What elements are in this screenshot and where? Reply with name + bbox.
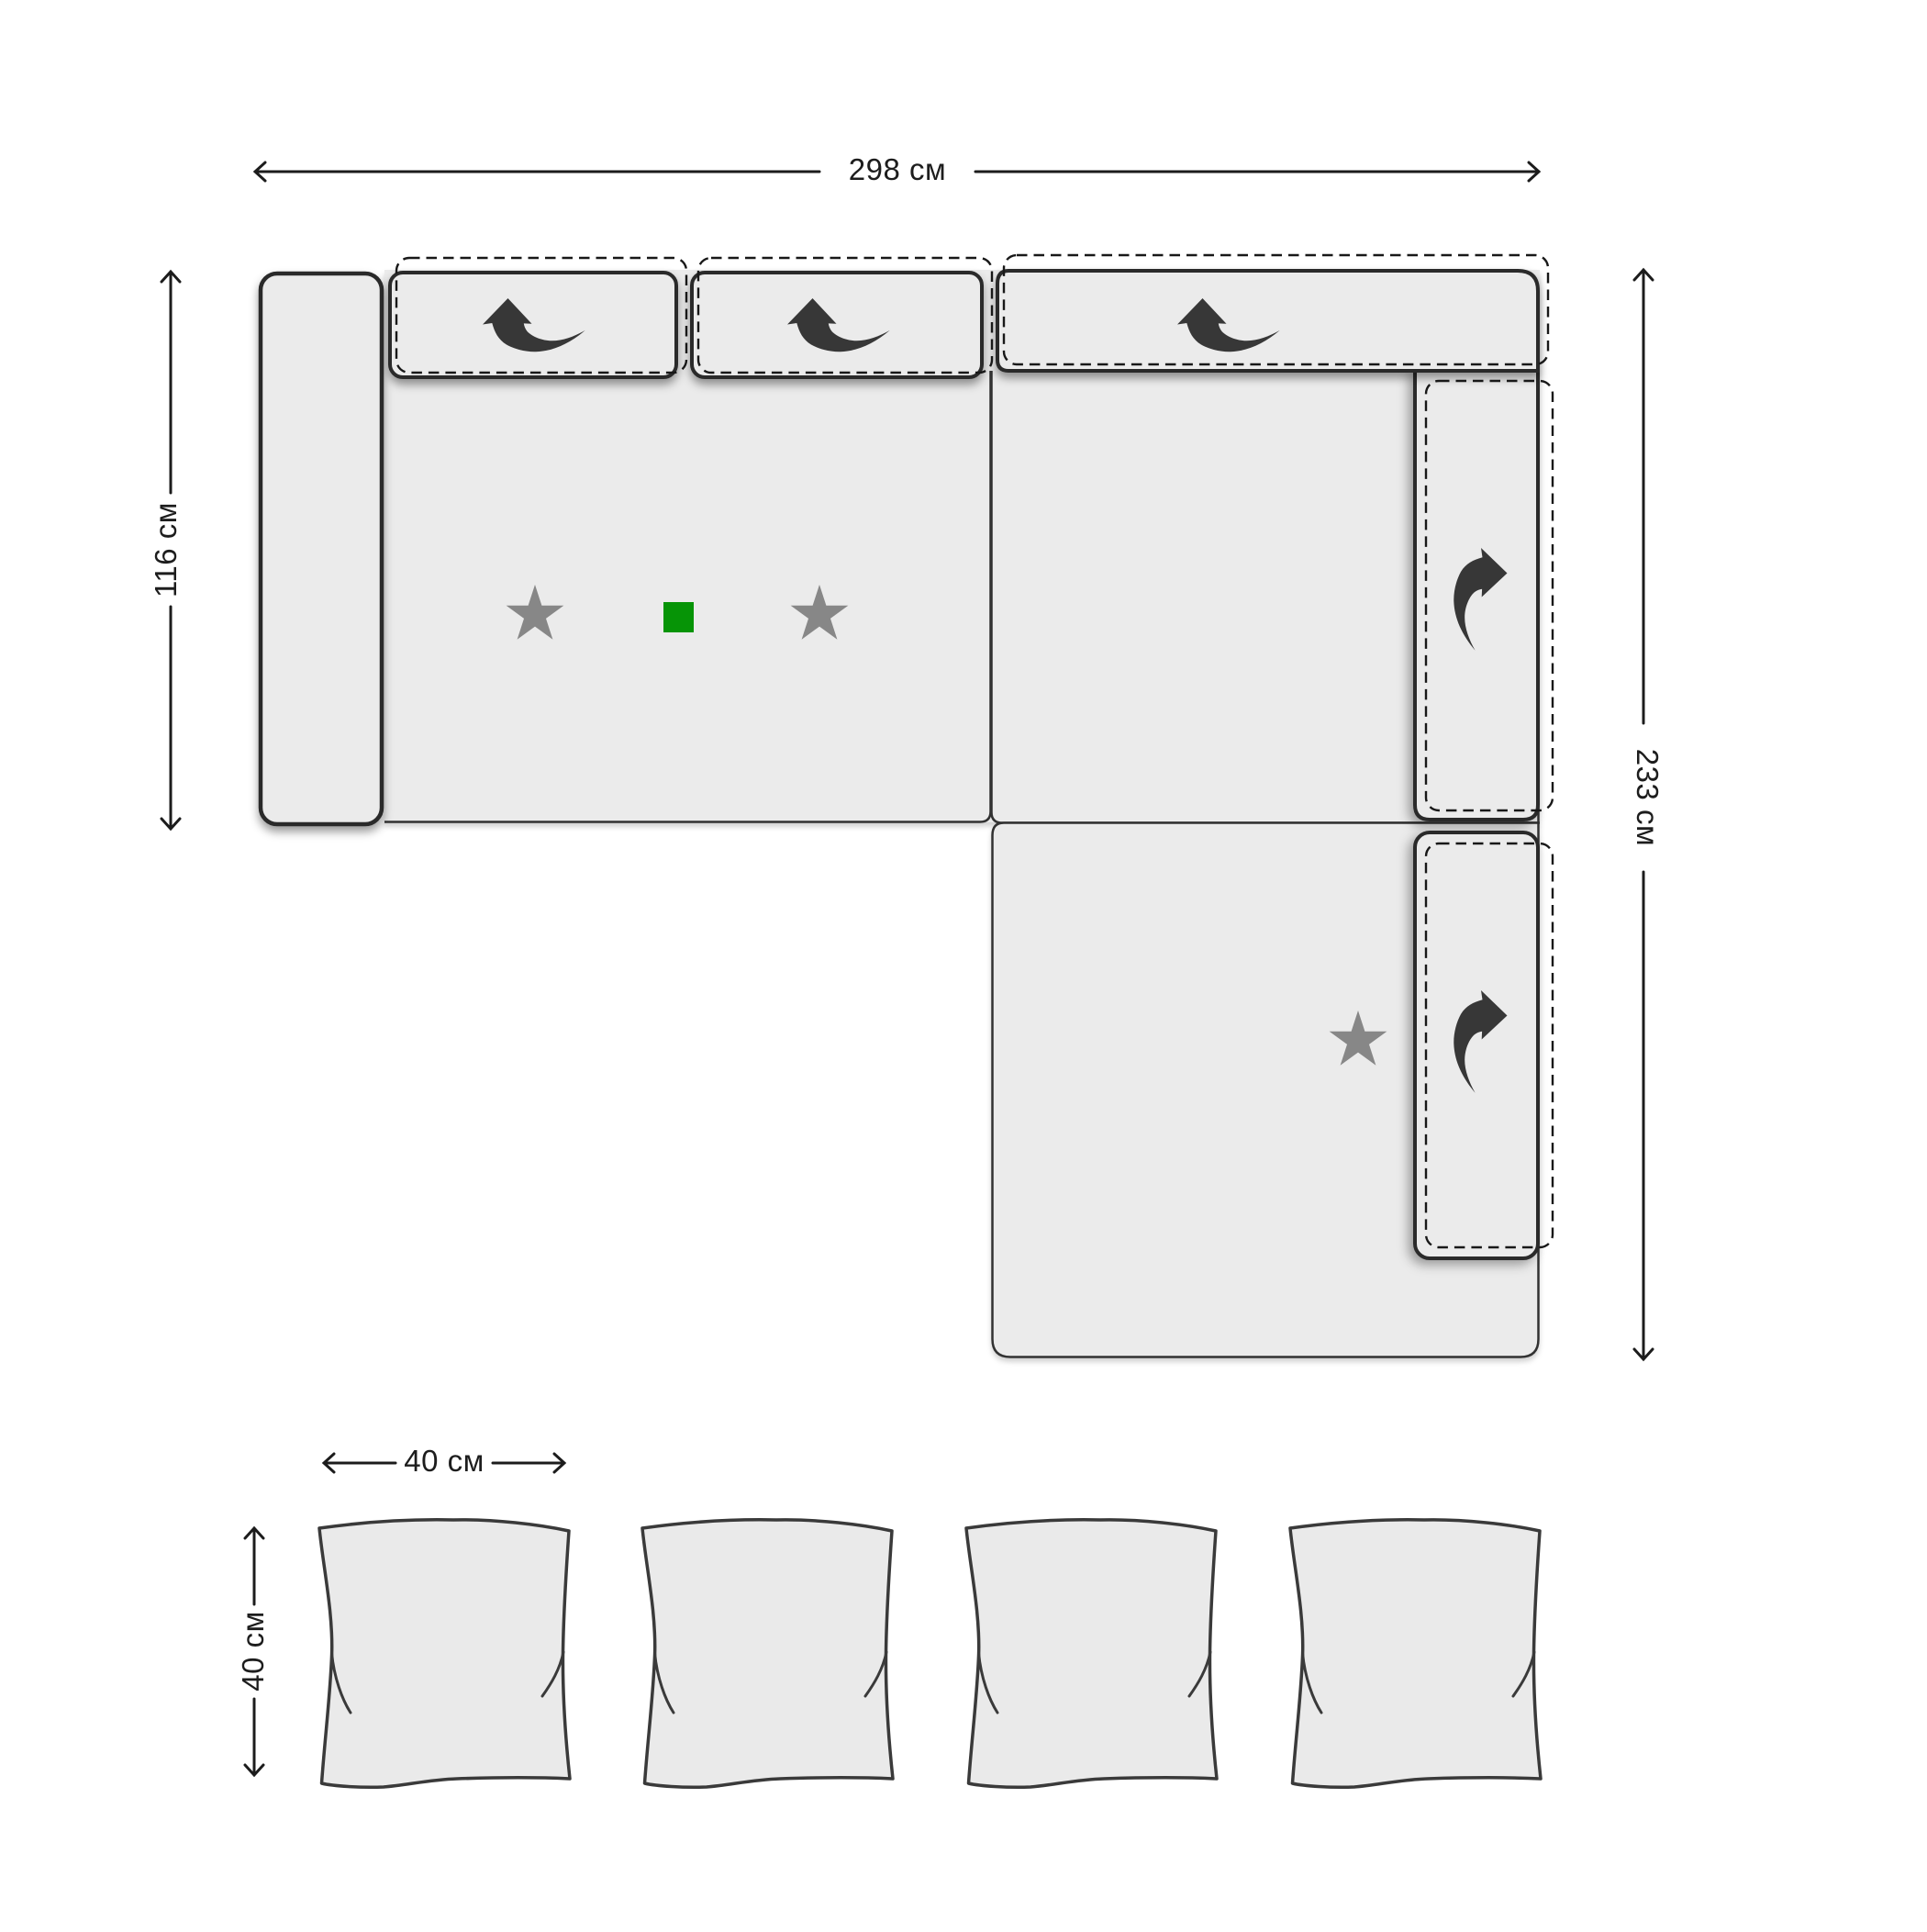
- svg-text:40 см: 40 см: [404, 1444, 485, 1478]
- svg-text:298 см: 298 см: [849, 152, 946, 186]
- svg-text:233 см: 233 см: [1631, 749, 1665, 846]
- svg-text:116 см: 116 см: [149, 502, 183, 597]
- svg-text:40 см: 40 см: [236, 1611, 270, 1692]
